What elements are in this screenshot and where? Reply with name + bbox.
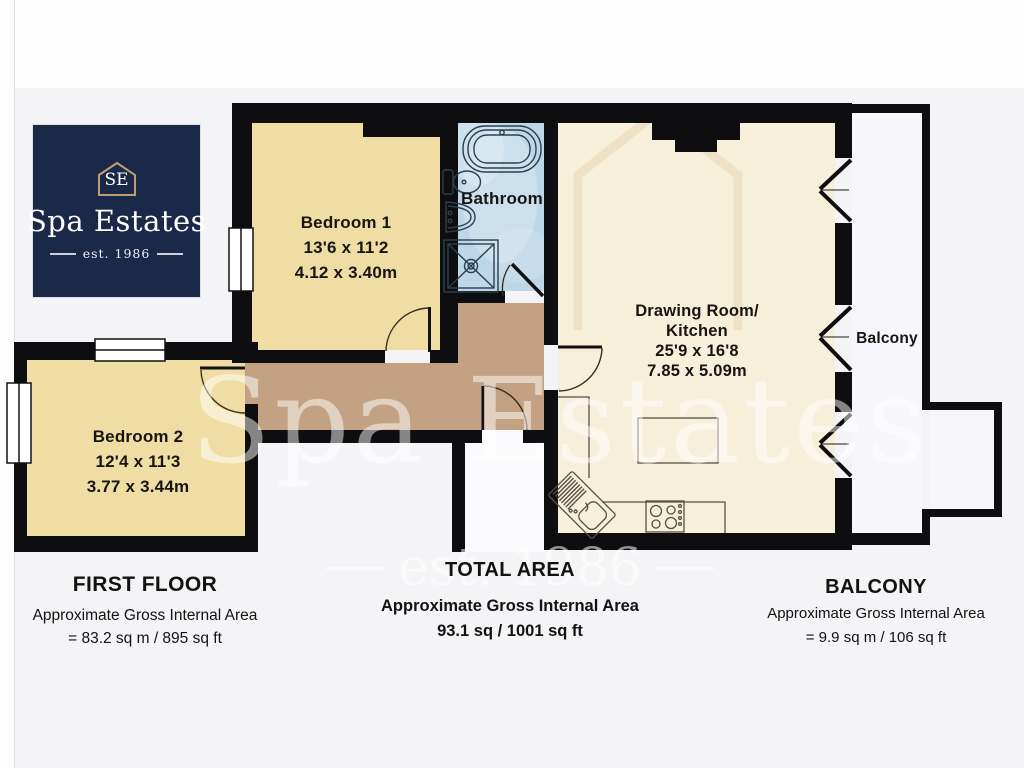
bedroom1-name: Bedroom 1 — [252, 210, 440, 235]
entrance-threshold — [482, 430, 523, 443]
wall-bathroom-bottom — [440, 291, 505, 303]
drawing-room-label: Drawing Room/ Kitchen 25'9 x 16'8 7.85 x… — [597, 301, 797, 381]
balcony-summary-title: BALCONY — [724, 576, 1024, 599]
bathroom-name: Bathroom — [443, 189, 561, 209]
balcony-floor-bump — [930, 410, 994, 509]
wall-bath-drawing-lower — [544, 390, 558, 533]
wall-vestibule-left — [452, 430, 465, 552]
wall-balcony-bump-right — [994, 402, 1002, 517]
wall-hall-bottom-right — [523, 430, 544, 443]
bedroom2-label: Bedroom 2 12'4 x 11'3 3.77 x 3.44m — [40, 424, 236, 499]
wall-balcony-bump-bottom — [922, 509, 1002, 517]
bathroom-label: Bathroom — [443, 189, 561, 209]
wall-hall-bottom-left — [245, 430, 482, 443]
wall-balcony-top — [852, 104, 930, 113]
first-floor-area-label: Approximate Gross Internal Area — [2, 604, 288, 627]
hallway-floor — [245, 363, 544, 430]
wall-bath-drawing-upper — [544, 123, 558, 345]
floor-plan-drawing — [0, 0, 1024, 768]
logo-dash-left — [50, 253, 76, 255]
balcony-summary: BALCONY Approximate Gross Internal Area … — [724, 576, 1024, 650]
wall-drawing-right-1 — [835, 123, 852, 158]
balcony-summary-area: Approximate Gross Internal Area = 9.9 sq… — [724, 602, 1024, 650]
wall-balcony-right — [922, 113, 930, 402]
logo-monogram: SE — [97, 170, 137, 190]
balcony-name: Balcony — [850, 330, 924, 348]
bedroom1-label: Bedroom 1 13'6 x 11'2 4.12 x 3.40m — [252, 210, 440, 285]
logo-established-row: est. 1986 — [50, 246, 184, 261]
drawing-room-name-line1: Drawing Room/ — [597, 301, 797, 321]
wall-balcony-bottom — [852, 533, 930, 545]
agency-logo: SE Spa Estates est. 1986 — [33, 125, 200, 297]
wall-balcony-bump-top — [922, 402, 1002, 410]
total-area-title: TOTAL AREA — [348, 559, 672, 582]
wall-drawing-right-3 — [835, 372, 852, 412]
wall-bed1-left-upper — [232, 123, 252, 228]
total-area-label: Approximate Gross Internal Area — [348, 594, 672, 619]
drawing-room-name-line2: Kitchen — [597, 321, 797, 341]
wall-bed1-bottom-stub — [430, 350, 440, 363]
total-area-area: Approximate Gross Internal Area 93.1 sq … — [348, 594, 672, 644]
entrance-vestibule-floor — [465, 443, 544, 552]
logo-name: Spa Estates — [27, 204, 206, 238]
balcony-floor — [852, 113, 922, 533]
balcony-label: Balcony — [850, 330, 924, 348]
wall-bed2-right — [245, 404, 258, 552]
balcony-area-value: = 9.9 sq m / 106 sq ft — [724, 626, 1024, 650]
bedroom2-dims-metric: 3.77 x 3.44m — [40, 474, 236, 499]
first-floor-summary: FIRST FLOOR Approximate Gross Internal A… — [2, 573, 288, 650]
wall-drawing-right-4 — [835, 478, 852, 533]
bedroom2-dims-imperial: 12'4 x 11'3 — [40, 449, 236, 474]
wall-bed2-left-lower — [14, 463, 27, 552]
floorplan-page: Spa Estates est. 1986 Bedroom 1 13'6 x 1… — [0, 0, 1024, 768]
balcony-area-label: Approximate Gross Internal Area — [724, 602, 1024, 626]
first-floor-title: FIRST FLOOR — [2, 573, 288, 597]
total-area-value: 93.1 sq / 1001 sq ft — [348, 619, 672, 644]
wall-top — [232, 103, 852, 123]
wall-bed2-top-right — [163, 342, 245, 360]
wall-drawing-right-2 — [835, 223, 852, 305]
wall-bed1-notch — [363, 123, 440, 137]
wall-bed2-corner — [245, 342, 258, 360]
wall-bed2-left-upper — [14, 342, 27, 383]
bedroom1-dims-metric: 4.12 x 3.40m — [252, 260, 440, 285]
drawing-room-dims-metric: 7.85 x 5.09m — [597, 361, 797, 381]
total-area-summary: TOTAL AREA Approximate Gross Internal Ar… — [348, 559, 672, 644]
logo-house-icon: SE — [97, 161, 137, 197]
drawing-room-dims-imperial: 25'9 x 16'8 — [597, 341, 797, 361]
hallway-floor-upper — [458, 303, 544, 363]
wall-bed2-bottom — [14, 536, 258, 552]
bedroom2-name: Bedroom 2 — [40, 424, 236, 449]
wall-balcony-right-lower — [922, 517, 930, 533]
logo-established: est. 1986 — [83, 246, 151, 261]
logo-dash-right — [157, 253, 183, 255]
first-floor-area: Approximate Gross Internal Area = 83.2 s… — [2, 604, 288, 650]
first-floor-area-value: = 83.2 sq m / 895 sq ft — [2, 627, 288, 650]
bedroom1-dims-imperial: 13'6 x 11'2 — [252, 235, 440, 260]
wall-drawing-bottom — [544, 533, 852, 550]
wall-bed1-bottom — [252, 350, 385, 363]
wall-bed1-bathroom — [440, 123, 458, 363]
